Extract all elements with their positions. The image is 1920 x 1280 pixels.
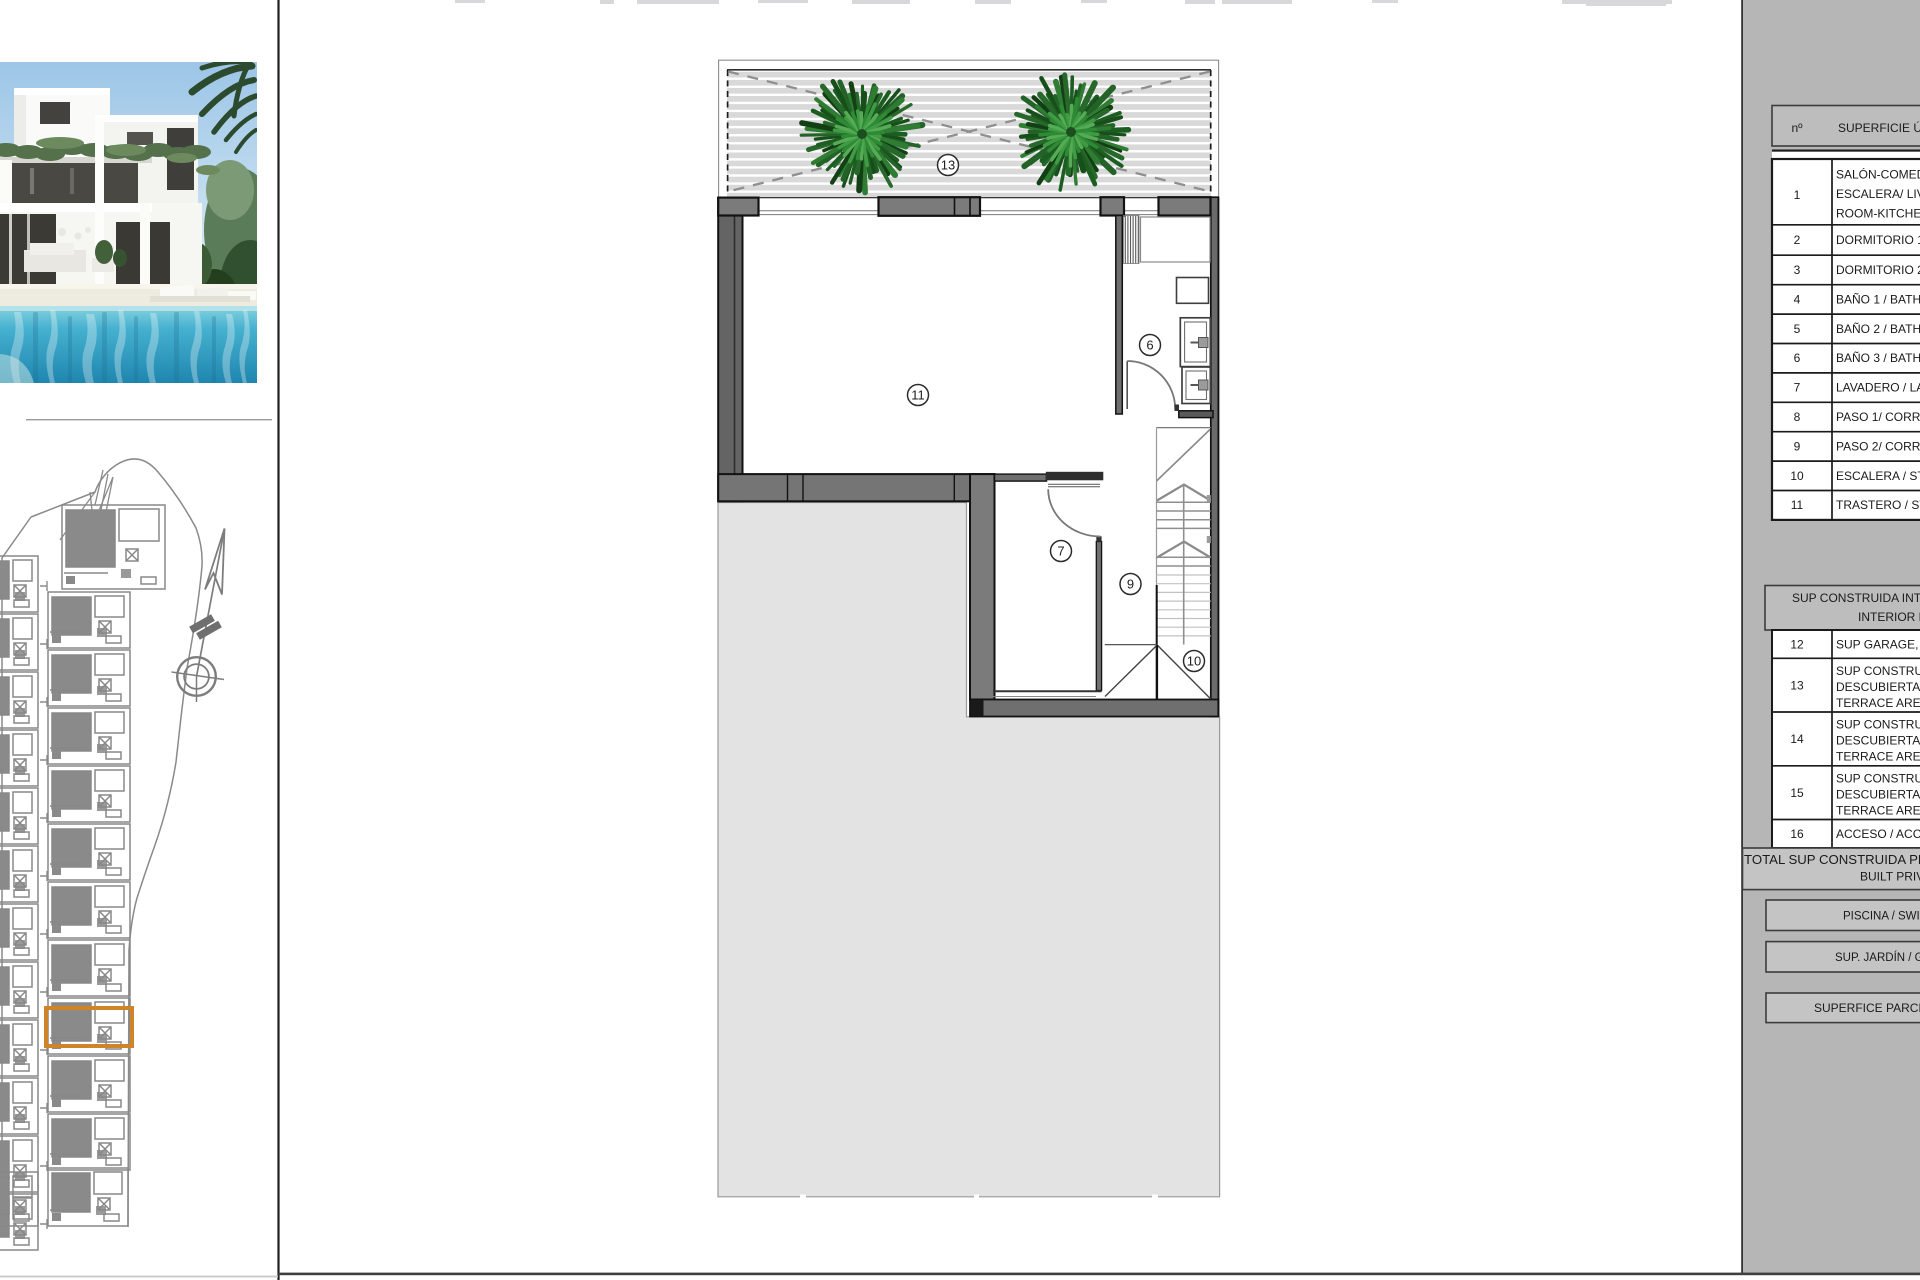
svg-text:12: 12: [1790, 637, 1804, 651]
svg-text:11: 11: [911, 388, 925, 403]
svg-text:SUP CONSTRUIDA TERRAZA: SUP CONSTRUIDA TERRAZA: [1836, 664, 1920, 678]
svg-text:DESCUBIERTA 3 / OPEN: DESCUBIERTA 3 / OPEN: [1836, 787, 1920, 801]
svg-text:LAVADERO / LAUNDRY: LAVADERO / LAUNDRY: [1836, 381, 1920, 395]
svg-text:13: 13: [1790, 678, 1804, 692]
svg-text:ESCALERA/ LIVING-DINING: ESCALERA/ LIVING-DINING: [1836, 187, 1920, 201]
svg-text:TERRACE AREA 3: TERRACE AREA 3: [1836, 803, 1920, 817]
svg-text:10: 10: [1187, 654, 1201, 669]
svg-text:8: 8: [1794, 410, 1801, 424]
svg-text:DORMITORIO 2 / BEDROOM 2: DORMITORIO 2 / BEDROOM 2: [1836, 263, 1920, 277]
svg-text:PASO 1/ CORRIDOR 1: PASO 1/ CORRIDOR 1: [1836, 410, 1920, 424]
svg-text:6: 6: [1794, 351, 1801, 365]
svg-text:TERRACE AREA 1: TERRACE AREA 1: [1836, 696, 1920, 710]
svg-text:BAÑO 1 / BATHROOM 1: BAÑO 1 / BATHROOM 1: [1836, 292, 1920, 306]
svg-text:TOTAL SUP CONSTRUIDA PRIVADA /: TOTAL SUP CONSTRUIDA PRIVADA /: [1744, 852, 1920, 867]
svg-text:7: 7: [1057, 544, 1064, 559]
svg-text:16: 16: [1790, 827, 1804, 841]
svg-text:7: 7: [1794, 381, 1801, 395]
svg-text:SUP. JARDÍN / GARDEN AREA: SUP. JARDÍN / GARDEN AREA: [1835, 951, 1920, 964]
svg-text:2: 2: [1794, 233, 1801, 247]
svg-text:ESCALERA / STAIRS: ESCALERA / STAIRS: [1836, 469, 1920, 483]
svg-text:PASO 2/ CORRIDOR 2: PASO 2/ CORRIDOR 2: [1836, 439, 1920, 453]
svg-text:3: 3: [1794, 263, 1801, 277]
svg-text:DORMITORIO 1 / BEDROOM 1: DORMITORIO 1 / BEDROOM 1: [1836, 233, 1920, 247]
svg-text:15: 15: [1790, 786, 1804, 800]
svg-text:DESCUBIERTA 1 / OPEN: DESCUBIERTA 1 / OPEN: [1836, 680, 1920, 694]
svg-text:SUP CONSTRUIDA TERRAZA: SUP CONSTRUIDA TERRAZA: [1836, 718, 1920, 732]
svg-text:TRASTERO / STORAGE: TRASTERO / STORAGE: [1836, 498, 1920, 512]
svg-text:14: 14: [1790, 732, 1804, 746]
svg-text:BUILT PRIVATE: BUILT PRIVATE: [1860, 870, 1920, 884]
svg-text:4: 4: [1794, 292, 1801, 306]
svg-text:PISCINA / SWIMMING POOL: PISCINA / SWIMMING POOL: [1843, 911, 1920, 923]
svg-text:nº: nº: [1791, 121, 1803, 135]
svg-text:ROOM-KITCHEN-STAIRS: ROOM-KITCHEN-STAIRS: [1836, 207, 1920, 221]
svg-text:SALÓN-COMEDOR-COCINA-: SALÓN-COMEDOR-COCINA-: [1836, 167, 1920, 182]
svg-text:10: 10: [1790, 469, 1804, 483]
svg-text:DESCUBIERTA 2 / OPEN: DESCUBIERTA 2 / OPEN: [1836, 734, 1920, 748]
svg-text:BAÑO 2 / BATHROOM 2: BAÑO 2 / BATHROOM 2: [1836, 322, 1920, 336]
svg-text:SUPERFICE PARCELA: SUPERFICE PARCELA: [1814, 1001, 1920, 1015]
svg-text:9: 9: [1794, 439, 1801, 453]
svg-text:13: 13: [941, 158, 955, 173]
svg-text:5: 5: [1794, 322, 1801, 336]
svg-text:SUPERFICIE ÚTIL / USEFUL: SUPERFICIE ÚTIL / USEFUL: [1838, 120, 1920, 135]
svg-text:TERRACE AREA 2: TERRACE AREA 2: [1836, 750, 1920, 764]
svg-text:SUP CONSTRUIDA TERRAZA: SUP CONSTRUIDA TERRAZA: [1836, 771, 1920, 785]
svg-text:1: 1: [1794, 188, 1801, 202]
svg-text:SUP GARAGE, GARAGE: SUP GARAGE, GARAGE: [1836, 637, 1920, 651]
svg-text:BAÑO 3 / BATHROOM 3: BAÑO 3 / BATHROOM 3: [1836, 351, 1920, 365]
svg-text:11: 11: [1791, 498, 1804, 512]
svg-text:9: 9: [1127, 577, 1134, 592]
svg-text:INTERIOR BUILT: INTERIOR BUILT: [1858, 610, 1920, 624]
svg-text:6: 6: [1146, 338, 1153, 353]
svg-text:SUP CONSTRUIDA INTERIOR /: SUP CONSTRUIDA INTERIOR /: [1792, 591, 1920, 605]
svg-text:ACCESO / ACCESS: ACCESO / ACCESS: [1836, 827, 1920, 841]
